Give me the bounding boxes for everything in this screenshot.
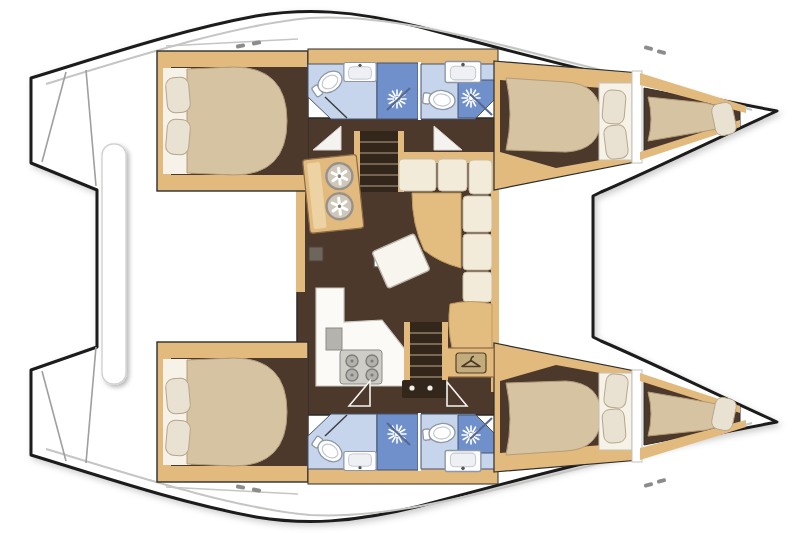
sofa-back-cushion	[469, 160, 492, 194]
sofa-back-cushion	[438, 159, 467, 191]
pillow	[602, 89, 627, 124]
wardrobe	[444, 348, 494, 377]
sofa-back-cushion	[463, 196, 492, 232]
double-berth	[187, 67, 287, 175]
galley-unit	[302, 154, 363, 233]
stove-4-burners	[340, 350, 382, 384]
landing-knob	[409, 385, 414, 390]
fridge-module	[309, 247, 323, 261]
chaise-corner-seat	[449, 302, 492, 351]
aft-crossbeam-bar	[102, 144, 126, 384]
hanger-plate	[456, 353, 486, 373]
pillow	[165, 77, 191, 114]
sofa-back-cushion	[463, 234, 492, 270]
aft-cabin	[157, 51, 308, 191]
sofa-back-cushion	[463, 272, 492, 302]
galley-sink-icon	[325, 162, 354, 191]
sink-icon	[445, 62, 481, 83]
counter-sink	[326, 328, 342, 350]
sink-icon	[344, 63, 376, 82]
pillow	[603, 124, 629, 160]
double-berth	[506, 78, 601, 152]
companionway-stairs-forward	[354, 131, 404, 192]
bathrooms	[308, 49, 498, 120]
stair-landing	[402, 380, 448, 398]
landing-knob	[427, 385, 432, 390]
catamaran-floorplan	[0, 0, 800, 533]
companionway-stairs-aft	[402, 322, 448, 398]
galley-sink-icon	[325, 192, 354, 221]
sofa-back-cushion	[399, 159, 436, 191]
pillow	[165, 119, 191, 156]
